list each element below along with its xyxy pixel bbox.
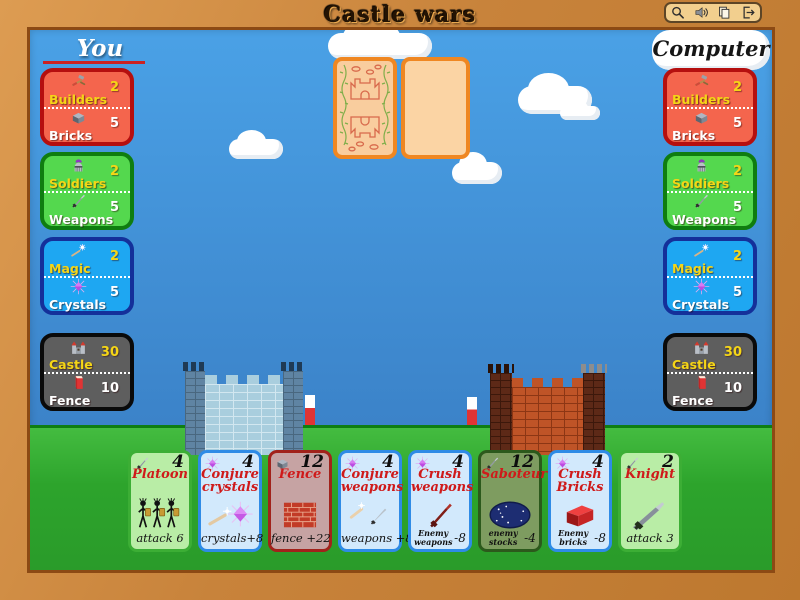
cloud: [560, 106, 600, 120]
crystal-icon: [693, 278, 710, 295]
hand-card-conjure-weapons[interactable]: 4 Conjure weapons weapons +8: [338, 450, 402, 552]
stat-label: Castle: [672, 357, 716, 372]
computer-panel-castle-fence: Castle 30 Fence 10: [663, 333, 757, 411]
toolbar: [664, 2, 762, 23]
brick-wall-art: [277, 498, 323, 532]
hand-card-saboteur[interactable]: 12 Saboteur enemy stocks -4: [478, 450, 542, 552]
sword-large-art: [627, 498, 673, 532]
computer-castle-tower: [490, 373, 512, 455]
castle-icon: [693, 339, 710, 356]
computer-panel-builders-bricks: Builders 2 Bricks 5: [663, 68, 757, 146]
stat-value: 30: [724, 345, 742, 360]
magnifier-icon[interactable]: [670, 5, 685, 20]
player-you-label: You: [45, 35, 155, 62]
stat-label: Bricks: [672, 128, 715, 143]
stat-value: 10: [101, 381, 119, 396]
player-castle-tower: [185, 371, 205, 455]
stat-value: 5: [733, 200, 742, 215]
stat-value: 2: [733, 249, 742, 264]
card-title: Platoon: [131, 468, 189, 481]
card-caption: enemy stocks -4: [481, 529, 539, 546]
castle-icon: [70, 339, 87, 356]
wand-icon: [70, 243, 87, 260]
sword-icon: [693, 193, 710, 210]
stat-value: 5: [110, 116, 119, 131]
wand-icon: [693, 243, 710, 260]
card-caption: weapons +8: [341, 531, 399, 545]
card-caption: Enemy weapons -8: [411, 529, 469, 546]
stat-value: 5: [733, 285, 742, 300]
exit-icon[interactable]: [741, 5, 756, 20]
crystal-icon: [70, 278, 87, 295]
stat-label: Builders: [672, 92, 730, 107]
fence-icon: [693, 374, 710, 391]
card-title: Crush weapons: [411, 468, 469, 495]
stat-value: 2: [110, 80, 119, 95]
card-caption: attack 6: [131, 531, 189, 545]
pages-icon[interactable]: [717, 5, 732, 20]
stat-label: Weapons: [49, 212, 113, 227]
stat-label: Crystals: [49, 297, 106, 312]
stat-label: Fence: [49, 393, 90, 408]
stat-value: 5: [733, 116, 742, 131]
stat-value: 2: [733, 164, 742, 179]
computer-panel-soldiers-weapons: Soldiers 2 Weapons 5: [663, 152, 757, 230]
brick-icon: [70, 109, 87, 126]
game-board: You Computer Builders 2 Bricks 5 Soldier…: [30, 30, 772, 570]
wand-sword-art: [347, 498, 393, 532]
you-panel-builders-bricks: Builders 2 Bricks 5: [40, 68, 134, 146]
player-computer-label: Computer: [652, 36, 770, 61]
hand-card-platoon[interactable]: 4 Platoon attack 6: [128, 450, 192, 552]
card-caption: fence +22: [271, 531, 329, 545]
fence-icon: [70, 374, 87, 391]
player-fence-post: [305, 395, 315, 425]
stat-value: 2: [733, 80, 742, 95]
card-title: Crush Bricks: [551, 468, 609, 495]
stat-value: 2: [110, 249, 119, 264]
stat-value: 5: [110, 200, 119, 215]
cloud: [229, 139, 283, 159]
night-moon-art: [487, 498, 533, 532]
cloud: [452, 162, 502, 184]
stat-value: 5: [110, 285, 119, 300]
hand-card-crush-bricks[interactable]: 4 Crush Bricks Enemy bricks -8: [548, 450, 612, 552]
stat-label: Magic: [49, 261, 91, 276]
card-title: Saboteur: [481, 468, 539, 481]
cloud: [328, 33, 432, 59]
deck-card[interactable]: [333, 57, 397, 159]
stat-label: Castle: [49, 357, 93, 372]
stat-label: Magic: [672, 261, 714, 276]
you-panel-magic-crystals: Magic 2 Crystals 5: [40, 237, 134, 315]
computer-castle-tower: [583, 373, 605, 455]
brick-icon: [693, 109, 710, 126]
card-caption: crystals+8: [201, 531, 259, 545]
card-title: Conjure weapons: [341, 468, 399, 495]
card-title: Conjure crystals: [201, 468, 259, 495]
stat-label: Bricks: [49, 128, 92, 143]
computer-panel-magic-crystals: Magic 2 Crystals 5: [663, 237, 757, 315]
stat-label: Soldiers: [49, 176, 106, 191]
you-panel-castle-fence: Castle 30 Fence 10: [40, 333, 134, 411]
hand-card-conjure-crystals[interactable]: 4 Conjure crystals crystals+8: [198, 450, 262, 552]
stat-label: Crystals: [672, 297, 729, 312]
hammer-icon: [693, 74, 710, 91]
stat-value: 10: [724, 381, 742, 396]
hand-card-crush-weapons[interactable]: 4 Crush weapons Enemy weapons -8: [408, 450, 472, 552]
speaker-icon[interactable]: [694, 5, 709, 20]
player-castle-tower: [283, 371, 303, 455]
helmet-icon: [693, 158, 710, 175]
stat-label: Fence: [672, 393, 713, 408]
stat-value: 2: [110, 164, 119, 179]
you-panel-soldiers-weapons: Soldiers 2 Weapons 5: [40, 152, 134, 230]
discard-slot[interactable]: [401, 57, 470, 159]
sword-icon: [70, 193, 87, 210]
platoon-art: [137, 498, 183, 532]
computer-fence-post: [467, 397, 477, 425]
red-sword-art: [417, 498, 463, 532]
stat-value: 30: [101, 345, 119, 360]
you-underline: [43, 61, 145, 64]
computer-castle-wall: [512, 387, 583, 455]
card-caption: Enemy bricks -8: [551, 529, 609, 546]
red-brick-art: [557, 498, 603, 532]
stat-label: Soldiers: [672, 176, 729, 191]
stat-label: Builders: [49, 92, 107, 107]
player-castle-wall: [205, 384, 283, 455]
conjure-crystals-art: [207, 498, 253, 532]
hand-card-knight[interactable]: 2 Knight attack 3: [618, 450, 682, 552]
card-caption: attack 3: [621, 531, 679, 545]
stat-label: Weapons: [672, 212, 736, 227]
hammer-icon: [70, 74, 87, 91]
helmet-icon: [70, 158, 87, 175]
card-title: Fence: [271, 468, 329, 481]
hand-card-fence[interactable]: 12 Fence fence +22: [268, 450, 332, 552]
card-title: Knight: [621, 468, 679, 481]
card-back-pattern: [337, 61, 393, 155]
